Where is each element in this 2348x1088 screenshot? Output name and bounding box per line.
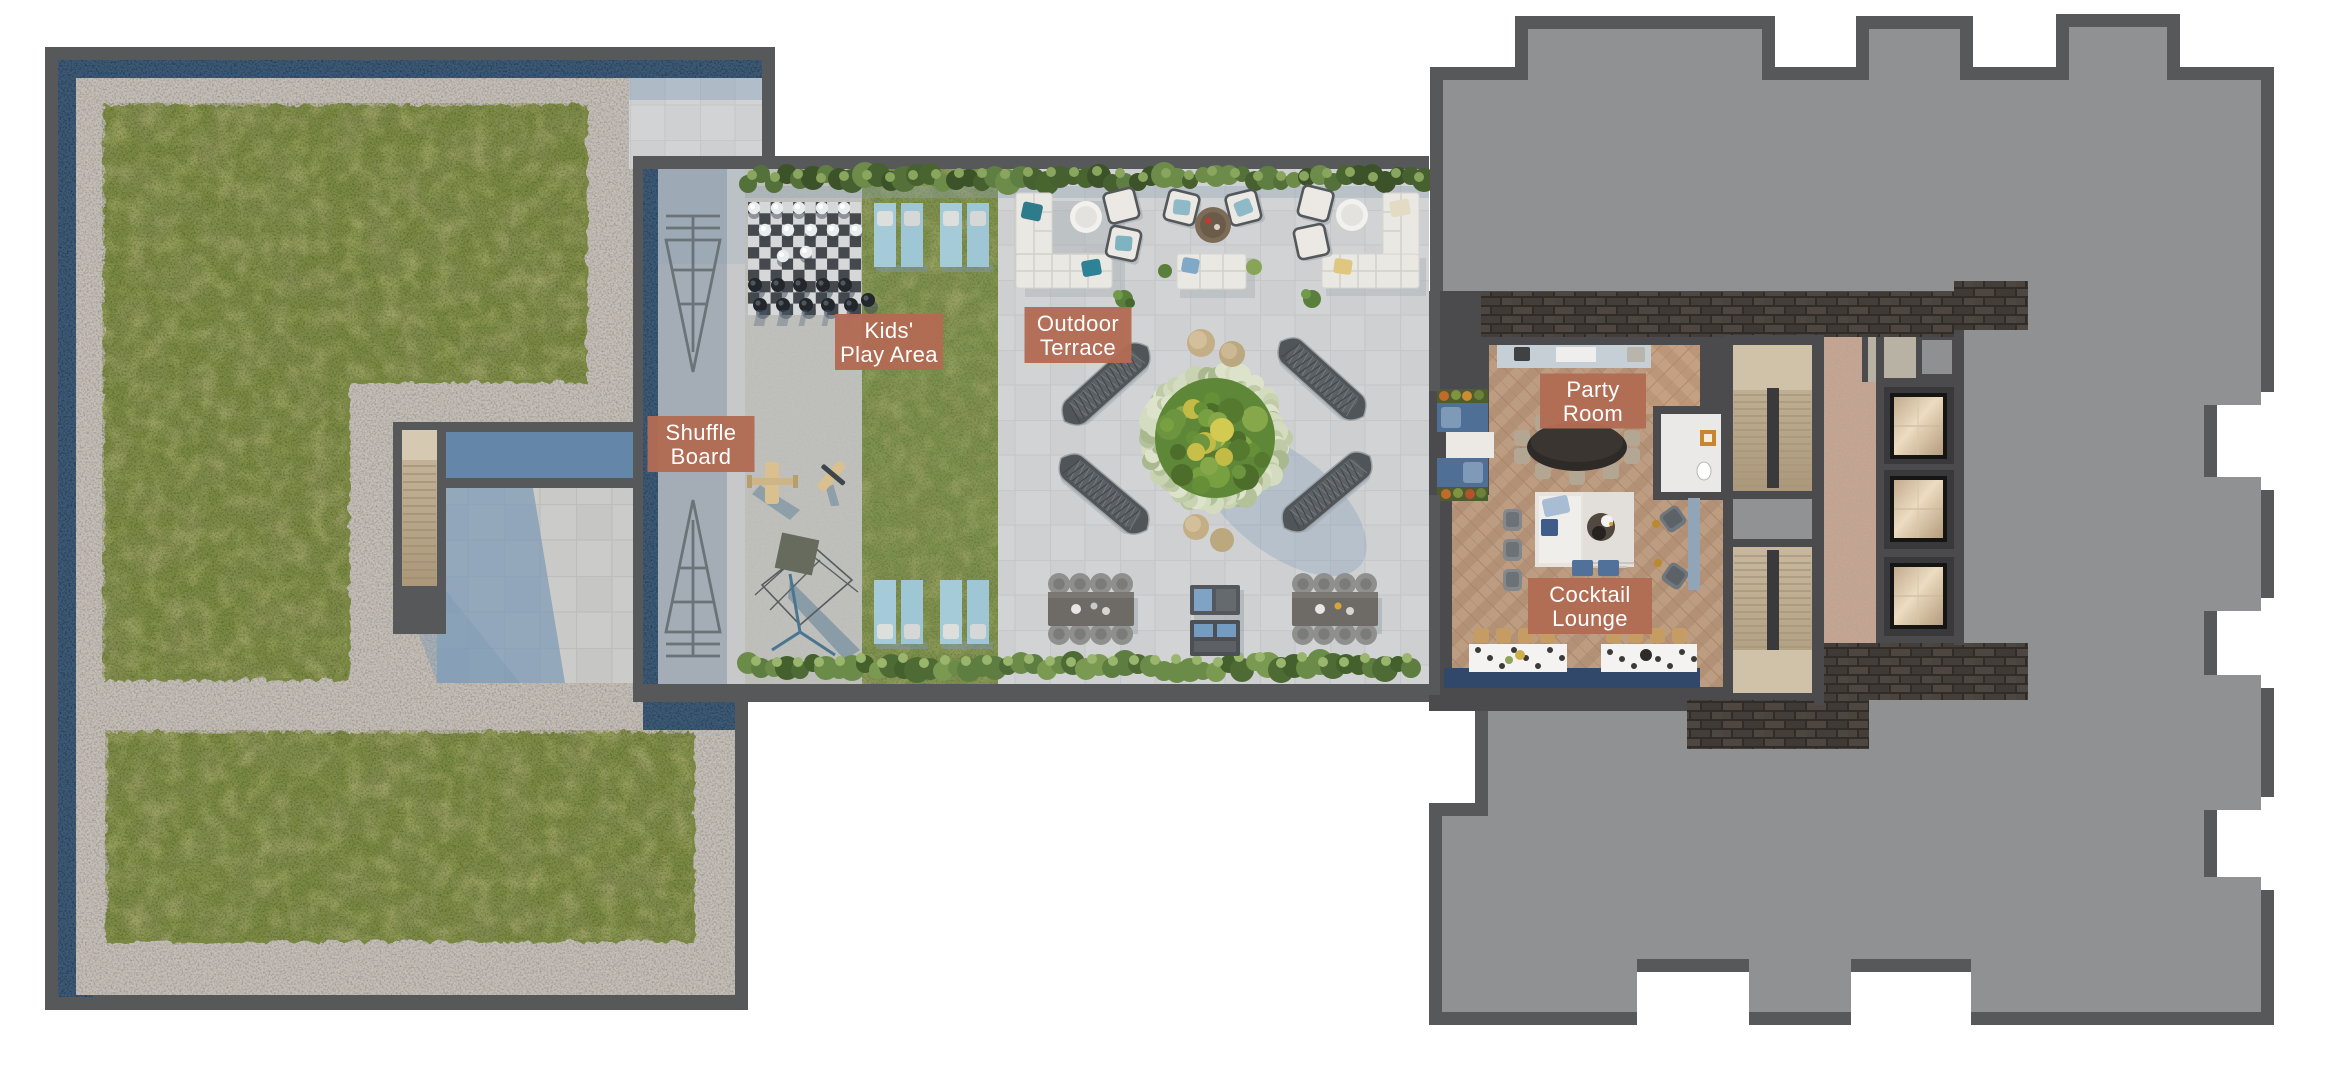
svg-text:Board: Board [671, 444, 732, 469]
svg-text:Party: Party [1566, 377, 1619, 402]
svg-text:Cocktail: Cocktail [1549, 582, 1630, 607]
svg-text:Outdoor: Outdoor [1037, 311, 1119, 336]
svg-text:Lounge: Lounge [1552, 606, 1628, 631]
svg-text:Shuffle: Shuffle [666, 420, 737, 445]
svg-text:Room: Room [1563, 401, 1623, 426]
svg-text:Play Area: Play Area [840, 342, 938, 367]
svg-text:Kids': Kids' [865, 318, 914, 343]
svg-text:Terrace: Terrace [1040, 335, 1116, 360]
